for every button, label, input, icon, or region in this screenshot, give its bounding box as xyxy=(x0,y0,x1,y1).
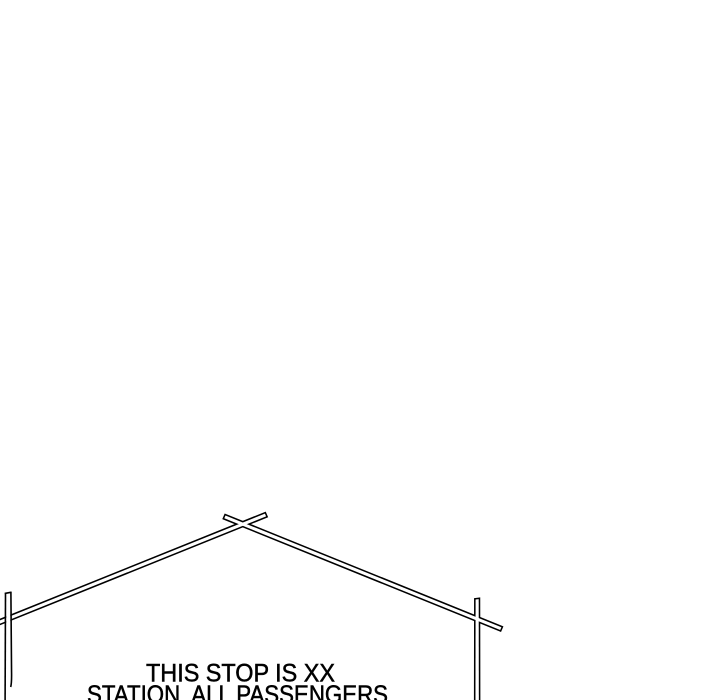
svg-text:STATION. ALL PASSENGERS: STATION. ALL PASSENGERS xyxy=(87,682,388,700)
